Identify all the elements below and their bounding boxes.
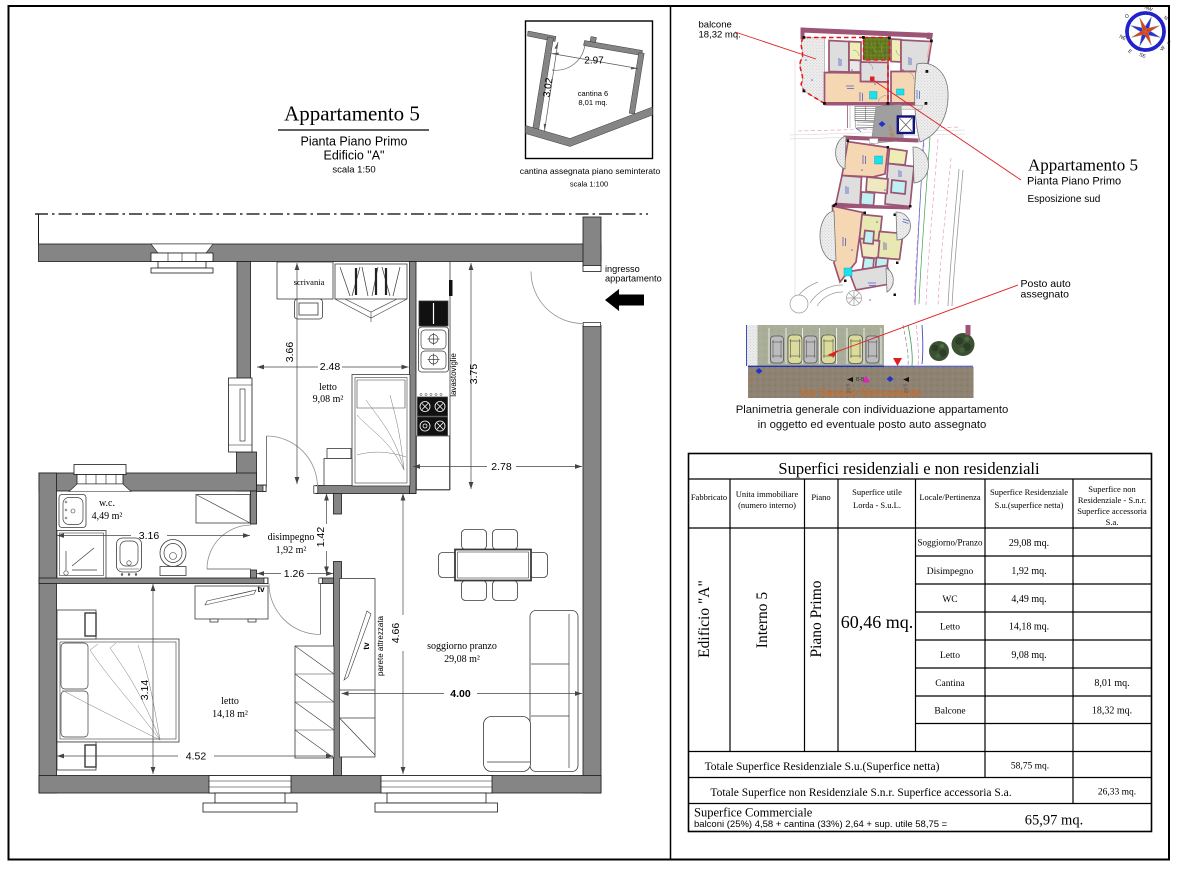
svg-text:appartamento: appartamento (605, 274, 662, 284)
svg-text:Disimpegno: Disimpegno (927, 567, 974, 577)
svg-text:Planimetria generale con indiv: Planimetria generale con individuazione … (736, 404, 1009, 416)
svg-text:Superfice Commerciale: Superfice Commerciale (694, 806, 813, 820)
svg-text:Superfice non: Superfice non (1088, 484, 1136, 494)
svg-text:ingresso: ingresso (605, 264, 640, 274)
svg-text:9,08 m²: 9,08 m² (313, 394, 344, 405)
svg-text:cantina 6: cantina 6 (578, 89, 608, 98)
svg-text:WC: WC (942, 595, 957, 605)
svg-text:Letto: Letto (940, 651, 960, 661)
svg-text:2.78: 2.78 (491, 461, 512, 473)
svg-text:Appartamento 5: Appartamento 5 (284, 102, 420, 126)
svg-text:lavastoviglie: lavastoviglie (449, 353, 458, 397)
svg-text:1.42: 1.42 (315, 527, 327, 548)
svg-text:3.14: 3.14 (139, 680, 151, 701)
svg-text:3.66: 3.66 (284, 342, 296, 363)
svg-text:2.97: 2.97 (584, 56, 604, 67)
svg-text:Edificio "A": Edificio "A" (324, 149, 385, 163)
svg-text:Superfici residenziali e non r: Superfici residenziali e non residenzial… (778, 459, 1040, 478)
svg-text:soggiorno pranzo: soggiorno pranzo (427, 641, 497, 652)
svg-text:Cantina: Cantina (935, 679, 965, 689)
svg-text:3.75: 3.75 (468, 364, 480, 385)
svg-text:8,01 mq.: 8,01 mq. (578, 98, 607, 107)
svg-text:60,46 mq.: 60,46 mq. (841, 612, 914, 632)
svg-text:4.66: 4.66 (390, 623, 402, 644)
svg-text:S.u.(superfice netta): S.u.(superfice netta) (995, 500, 1064, 510)
svg-text:Edificio "A": Edificio "A" (696, 580, 713, 658)
svg-text:Balcone: Balcone (934, 707, 965, 717)
svg-text:W: W (1159, 45, 1167, 53)
svg-text:tv: tv (257, 585, 265, 594)
svg-text:Unita immobiliare: Unita immobiliare (736, 489, 799, 499)
svg-text:1,92 m²: 1,92 m² (276, 545, 307, 556)
svg-text:S: S (1165, 40, 1171, 47)
svg-text:14,18 mq.: 14,18 mq. (1009, 622, 1049, 633)
svg-text:2.48: 2.48 (320, 361, 341, 373)
svg-text:8,01 mq.: 8,01 mq. (1094, 678, 1129, 689)
svg-text:29,08 mq.: 29,08 mq. (1009, 538, 1049, 549)
svg-text:SE: SE (1138, 52, 1147, 60)
svg-text:Totale Superfice Residenziale: Totale Superfice Residenziale S.u.(Super… (705, 761, 940, 773)
svg-text:4,49 mq.: 4,49 mq. (1011, 594, 1046, 605)
svg-text:(numero interno): (numero interno) (738, 500, 796, 510)
svg-text:Piano Primo: Piano Primo (808, 580, 825, 657)
svg-text:Pianta Piano Primo: Pianta Piano Primo (1027, 176, 1121, 188)
svg-text:4.00: 4.00 (450, 688, 471, 700)
svg-text:w.c.: w.c. (99, 498, 115, 509)
svg-text:Locale/Pertinenza: Locale/Pertinenza (919, 492, 981, 502)
svg-text:4.52: 4.52 (186, 751, 207, 763)
svg-text:Piano: Piano (811, 492, 830, 502)
svg-text:in oggetto ed eventuale posto: in oggetto ed eventuale posto auto asseg… (758, 419, 987, 431)
svg-text:Residenziale - S.n.r.: Residenziale - S.n.r. (1078, 495, 1146, 505)
svg-text:Appartamento 5: Appartamento 5 (1028, 156, 1138, 175)
svg-text:Superfice utile: Superfice utile (852, 487, 902, 497)
svg-text:scala 1:50: scala 1:50 (332, 165, 375, 176)
svg-text:Letto: Letto (940, 623, 960, 633)
svg-text:E: E (1127, 48, 1134, 55)
svg-text:Superfice accessoria: Superfice accessoria (1077, 506, 1147, 516)
svg-text:S.a.: S.a. (1106, 517, 1119, 527)
svg-text:14,18 m²: 14,18 m² (212, 709, 248, 720)
svg-text:Esposizione sud: Esposizione sud (1028, 194, 1101, 205)
svg-text:balconi (25%) 4,58 + cantina (: balconi (25%) 4,58 + cantina (33%) 2,64 … (694, 819, 948, 830)
svg-text:29,08 m²: 29,08 m² (444, 654, 480, 665)
svg-text:26,33 mq.: 26,33 mq. (1098, 788, 1136, 798)
svg-text:1.26: 1.26 (284, 568, 305, 580)
svg-text:Pianta Piano Primo: Pianta Piano Primo (300, 135, 407, 149)
svg-text:Lorda - S.u.L.: Lorda - S.u.L. (853, 500, 901, 510)
svg-text:Superfice Residenziale: Superfice Residenziale (990, 487, 1068, 497)
svg-text:18,32 mq.: 18,32 mq. (699, 30, 741, 41)
svg-text:65,97 mq.: 65,97 mq. (1025, 813, 1083, 829)
svg-text:scrivania: scrivania (294, 277, 325, 287)
svg-text:cantina assegnata piano semint: cantina assegnata piano seminterato (520, 166, 661, 176)
svg-text:3.16: 3.16 (139, 530, 160, 542)
svg-text:58,75 mq.: 58,75 mq. (1011, 762, 1049, 772)
svg-text:Totale Superfice non Residenzi: Totale Superfice non Residenziale S.n.r.… (710, 787, 1011, 799)
svg-text:4,49 m²: 4,49 m² (92, 511, 123, 522)
svg-text:Soggiorno/Pranzo: Soggiorno/Pranzo (918, 538, 983, 548)
svg-text:parete attrezzata: parete attrezzata (376, 615, 385, 676)
svg-text:Interno 5: Interno 5 (754, 592, 771, 649)
svg-text:scala 1:100: scala 1:100 (570, 180, 608, 189)
svg-text:1,92 mq.: 1,92 mq. (1011, 566, 1046, 577)
svg-text:letto: letto (221, 696, 239, 707)
svg-text:18,32 mq.: 18,32 mq. (1092, 706, 1132, 717)
svg-text:B-B: B-B (856, 377, 865, 383)
svg-text:disimpegno: disimpegno (268, 532, 315, 543)
svg-text:9,08 mq.: 9,08 mq. (1011, 650, 1046, 661)
svg-text:tv: tv (362, 642, 371, 650)
svg-text:letto: letto (319, 382, 337, 393)
svg-text:assegnato: assegnato (1021, 289, 1070, 301)
svg-text:Fabbricato: Fabbricato (691, 492, 727, 502)
